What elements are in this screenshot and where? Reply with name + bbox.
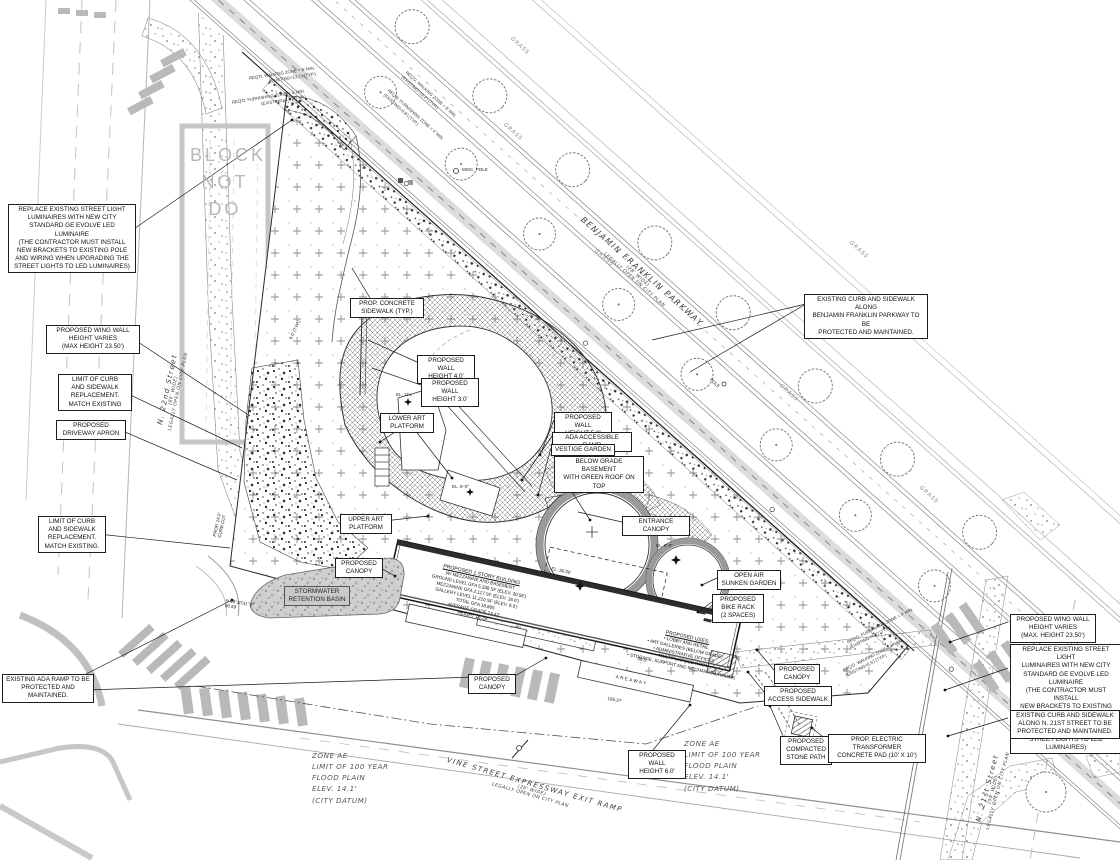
callout-bike-rack: PROPOSED BIKE RACK (2 SPACES): [712, 594, 764, 623]
callout-access-sidewalk: PROPOSED ACCESS SIDEWALK: [764, 686, 832, 706]
elevation-marker: EL. 8'-0": [656, 543, 673, 548]
callout-open-air-sunken-garden: OPEN AIR SUNKEN GARDEN: [717, 570, 781, 590]
callout-canopy-east: PROPOSED CANOPY: [774, 664, 820, 684]
flood-note-left: ZONE AE LIMIT OF 100 YEAR FLOOD PLAIN EL…: [312, 750, 389, 806]
crosswalk-bottom: [180, 685, 308, 726]
callout-stormwater-basin: STORMWATER RETENTION BASIN: [284, 586, 350, 606]
callout-driveway-apron: PROPOSED DRIVEWAY APRON: [56, 420, 126, 440]
callout-canopy-south: PROPOSED CANOPY: [468, 674, 516, 694]
callout-existing-curb-21st: EXISTING CURB AND SIDEWALK ALONG N. 21ST…: [1010, 710, 1120, 739]
callout-stone-path: PROPOSED COMPACTED STONE PATH: [780, 736, 832, 765]
crosswalk-bottom-left: [118, 624, 211, 690]
callout-vestige-garden: VESTIGE GARDEN: [551, 444, 615, 456]
callout-curb-limit-upper: LIMIT OF CURB AND SIDEWALK REPLACEMENT. …: [58, 374, 132, 411]
callout-replace-streetlights-left: REPLACE EXISTING STREET LIGHT LUMINAIRES…: [8, 204, 136, 273]
callout-concrete-sidewalk: PROP. CONCRETE SIDEWALK (TYP.): [350, 298, 424, 318]
callout-entrance-canopy: ENTRANCE CANOPY: [622, 516, 690, 536]
callout-wall-6: PROPOSED WALL HEIGHT 6.0': [628, 750, 686, 779]
callout-canopy-west: PROPOSED CANOPY: [335, 558, 383, 578]
callout-wall-3: PROPOSED WALL HEIGHT 3.0': [421, 378, 479, 407]
callout-lower-art-platform: LOWER ART PLATFORM: [380, 413, 434, 433]
elevation-marker: EL. 11'±: [396, 392, 412, 397]
callout-wing-wall-right: PROPOSED WING WALL HEIGHT VARIES (MAX. H…: [1010, 614, 1096, 643]
callout-below-grade-basement: BELOW GRADE BASEMENT WITH GREEN ROOF ON …: [554, 456, 644, 493]
callout-upper-art-platform: UPPER ART PLATFORM: [340, 514, 392, 534]
callout-wing-wall-left: PROPOSED WING WALL HEIGHT VARIES (MAX HE…: [46, 325, 140, 354]
callout-transformer-pad: PROP. ELECTRIC TRANSFORMER CONCRETE PAD …: [828, 734, 926, 763]
lamp-pole-icon: [517, 746, 522, 751]
flood-note-right: ZONE AE LIMIT OF 100 YEAR FLOOD PLAIN EL…: [684, 738, 761, 794]
elevation-marker: EL. 6'-0": [452, 484, 469, 489]
callout-curb-limit-lower: LIMIT OF CURB AND SIDEWALK REPLACEMENT. …: [38, 516, 106, 553]
misc-pole-label: MISC. POLE: [462, 167, 488, 172]
stairs: [375, 448, 389, 486]
crosswalk-top-left: [58, 8, 187, 115]
transformer-pad: [791, 716, 812, 737]
block-watermark: BLOCK NOT DO: [190, 142, 260, 223]
callout-ada-ramp: EXISTING ADA RAMP TO BE PROTECTED AND MA…: [2, 674, 94, 703]
callout-existing-curb-parkway: EXISTING CURB AND SIDEWALK ALONG BENJAMI…: [804, 294, 928, 339]
site-plan-sheet: BLOCK NOT DO BENJAMIN FRANKLIN PARKWAY (…: [0, 0, 1120, 860]
